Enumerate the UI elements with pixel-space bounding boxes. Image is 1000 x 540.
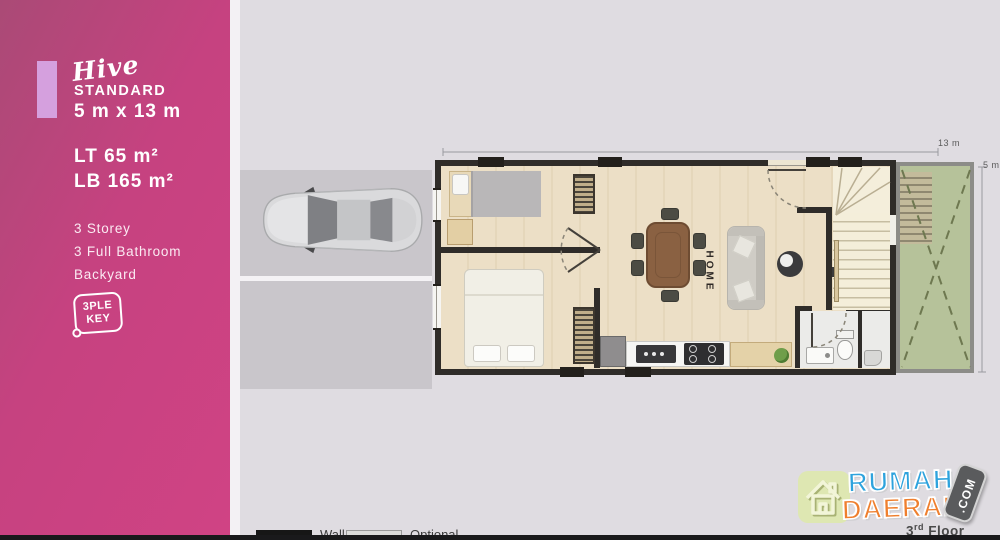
interior-wall	[798, 306, 812, 311]
stove	[684, 343, 724, 365]
parking-stall-empty	[240, 281, 432, 389]
wall-column	[838, 157, 862, 167]
entry-door-opening	[768, 160, 806, 166]
bottom-crop-bar	[0, 535, 1000, 540]
tier-label: STANDARD	[74, 83, 166, 99]
wall-column	[478, 157, 504, 167]
dining-chair	[631, 260, 644, 276]
dimension-label-height: 5 m	[983, 160, 1000, 170]
bed-pillow	[507, 345, 535, 362]
key-ring-icon	[72, 328, 82, 338]
feature-item: 3 Storey	[74, 221, 131, 236]
interior-wall	[441, 247, 600, 253]
window	[433, 284, 441, 330]
bed-fold	[465, 294, 543, 296]
feature-item: 3 Full Bathroom	[74, 244, 181, 259]
brand-logo: RUMAH DAERAH .COM	[796, 464, 996, 536]
flyer-canvas: Hive STANDARD 5 m x 13 m LT 65 m² LB 165…	[0, 0, 1000, 540]
bed-blanket	[471, 171, 541, 217]
sofa-pillow	[732, 235, 756, 259]
interior-wall	[826, 211, 832, 310]
interior-wall	[858, 311, 862, 368]
staircase	[833, 213, 890, 310]
wardrobe	[573, 174, 595, 214]
sofa-back	[756, 227, 764, 309]
fridge	[600, 336, 626, 367]
dining-table	[646, 222, 690, 288]
badge-line2: KEY	[76, 311, 121, 326]
triple-key-badge-icon: 3PLE KEY	[73, 291, 124, 334]
feature-item: Backyard	[74, 267, 137, 282]
backyard	[896, 162, 974, 373]
wall-column	[806, 157, 830, 167]
dining-chair	[661, 208, 679, 220]
shower-tray	[806, 347, 834, 364]
bed-pillow	[473, 345, 501, 362]
series-name: Hive	[70, 50, 141, 87]
kitchen-sink	[636, 345, 676, 363]
info-panel: Hive STANDARD 5 m x 13 m LT 65 m² LB 165…	[0, 0, 230, 540]
interior-wall	[797, 207, 832, 213]
land-area-label: LT 65 m²	[74, 146, 159, 168]
size-label: 5 m x 13 m	[74, 101, 181, 123]
plant-icon	[774, 348, 789, 363]
building-area-label: LB 165 m²	[74, 171, 174, 193]
toilet-bowl	[837, 340, 853, 360]
sofa	[727, 226, 765, 310]
toilet	[836, 330, 854, 339]
panel-divider	[230, 0, 240, 540]
stair-door	[834, 240, 839, 302]
coffee-table	[777, 251, 803, 277]
dining-chair	[693, 233, 706, 249]
sofa-armrest	[728, 227, 764, 236]
wall-column	[625, 367, 651, 377]
wardrobe	[573, 307, 595, 364]
double-bed	[464, 269, 544, 367]
dimension-label-width: 13 m	[938, 138, 960, 148]
wall-column	[560, 367, 584, 377]
dining-chair	[631, 233, 644, 249]
car-top-view-icon	[248, 174, 432, 266]
wash-basin	[864, 350, 882, 366]
backyard-steps	[900, 172, 932, 244]
stairs-winder	[833, 167, 890, 213]
home-label: HOME	[704, 249, 715, 295]
accent-bar	[37, 61, 57, 118]
wall-column	[598, 157, 622, 167]
bed-pillow	[452, 174, 469, 195]
sofa-armrest	[728, 300, 764, 309]
nightstand	[447, 219, 473, 245]
window	[433, 188, 441, 222]
dining-chair	[661, 290, 679, 302]
